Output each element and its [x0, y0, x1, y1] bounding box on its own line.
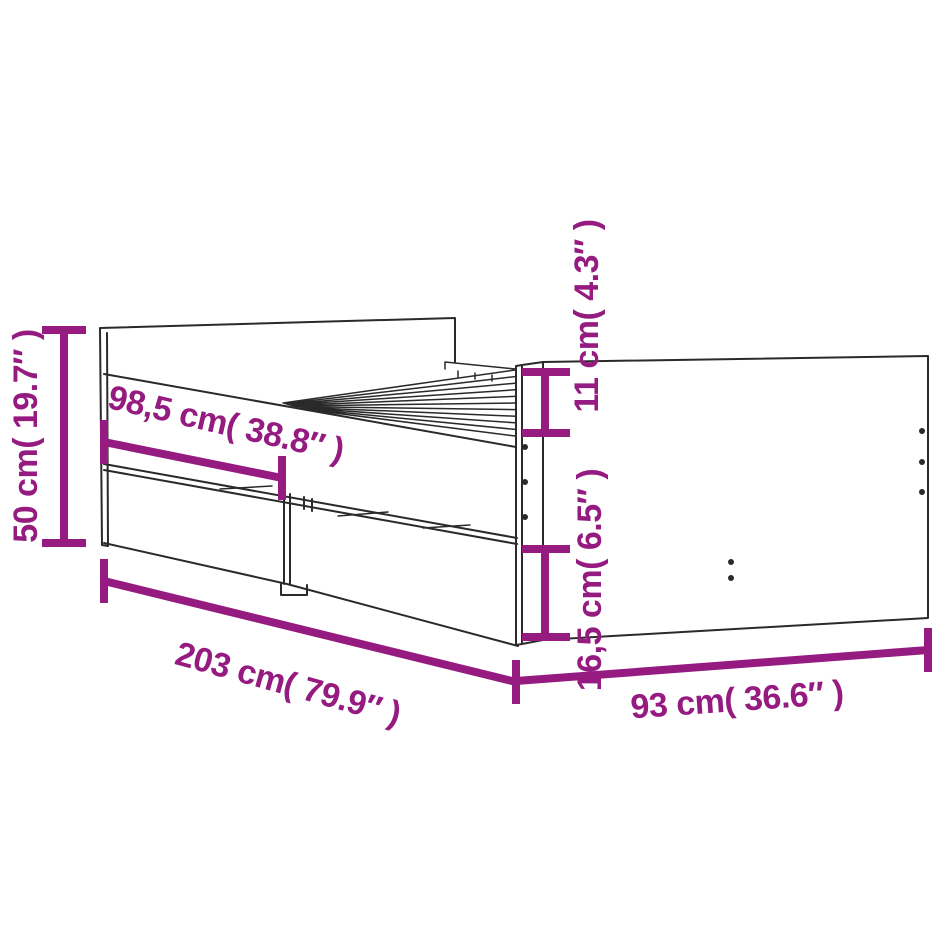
- screw-hole: [919, 459, 925, 465]
- bed-frame-drawing: [100, 318, 928, 646]
- dimension-label-drawer-section-height: 16,5 cm( 6.5″ ): [571, 469, 609, 691]
- dimension-label-drawer-front-length: 98,5 cm( 38.8″ ): [104, 378, 347, 469]
- bed-frame-dimension-diagram: 50 cm( 19.7″ ) 98,5 cm( 38.8″ ) 11 cm( 4…: [0, 0, 947, 947]
- dimension-label-top-section-height: 11 cm( 4.3″ ): [568, 219, 606, 412]
- screw-hole: [522, 514, 528, 520]
- dimension-line: [42, 330, 86, 543]
- dimension-line: [522, 372, 570, 433]
- bed-drawers: [104, 486, 518, 646]
- screw-hole: [919, 489, 925, 495]
- diagram-canvas: 50 cm( 19.7″ ) 98,5 cm( 38.8″ ) 11 cm( 4…: [0, 0, 947, 947]
- dimension-label-overall-height: 50 cm( 19.7″ ): [7, 329, 45, 542]
- dimension-top-section-height: 11 cm( 4.3″ ): [522, 219, 606, 433]
- drawer-outlines: [104, 493, 518, 646]
- dimension-drawer-section-height: 16,5 cm( 6.5″ ): [522, 469, 609, 691]
- dimension-drawer-front-length: 98,5 cm( 38.8″ ): [104, 378, 348, 500]
- dimension-label-overall-width: 93 cm( 36.6″ ): [629, 674, 845, 727]
- screw-hole: [728, 559, 734, 565]
- screw-hole: [522, 444, 528, 450]
- dimension-overall-height: 50 cm( 19.7″ ): [7, 329, 86, 543]
- dimension-line: [522, 549, 570, 637]
- screw-hole: [919, 428, 925, 434]
- screw-hole: [728, 575, 734, 581]
- screw-hole: [522, 479, 528, 485]
- dimension-overall-length: 203 cm( 79.9″ ): [104, 559, 516, 733]
